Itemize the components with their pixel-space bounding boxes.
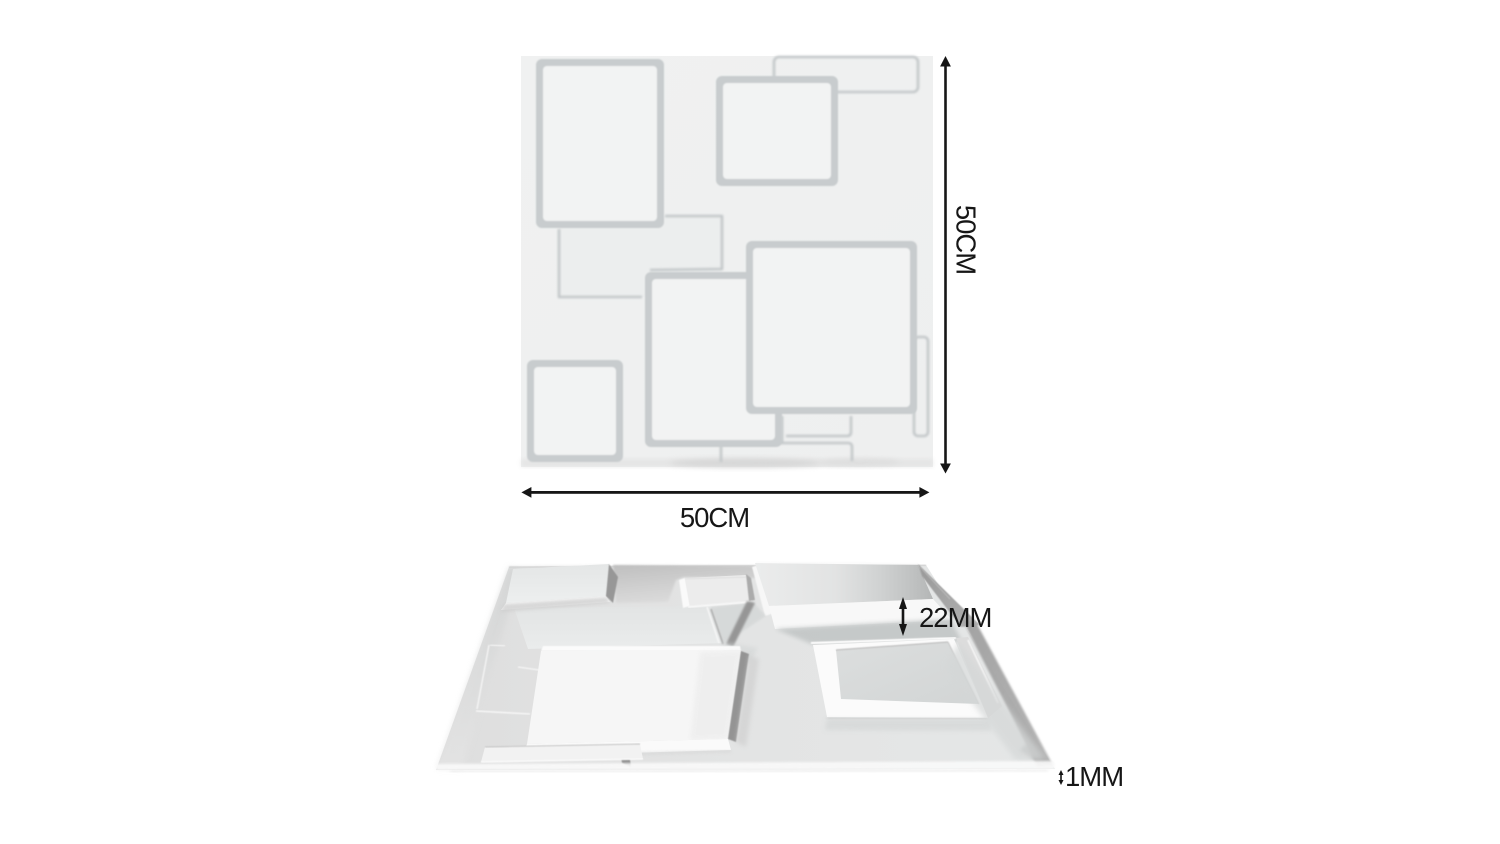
- svg-text:50CM: 50CM: [951, 205, 982, 274]
- svg-text:1MM: 1MM: [1065, 761, 1123, 792]
- svg-text:50CM: 50CM: [680, 502, 749, 533]
- svg-text:22MM: 22MM: [919, 602, 991, 633]
